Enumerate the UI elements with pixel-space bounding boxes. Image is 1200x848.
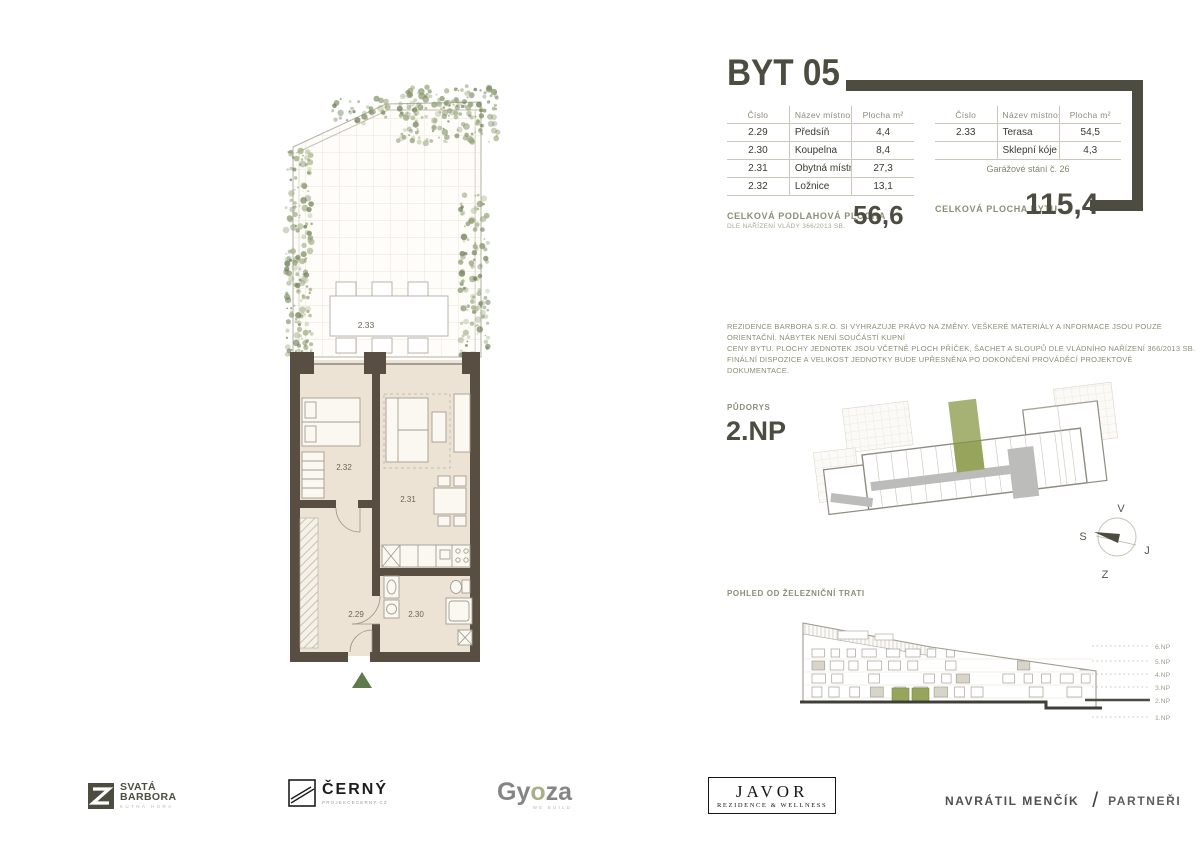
floor-labels: 6.NP 5.NP 4.NP 3.NP 2.NP 1.NP: [1155, 644, 1171, 722]
site-plan: [809, 376, 1124, 522]
col-number: Číslo: [935, 106, 997, 124]
svg-text:5.NP: 5.NP: [1155, 659, 1171, 666]
compass-north: S: [1079, 531, 1086, 543]
disclaimer-text: REZIDENCE BARBORA S.R.O. SI VYHRAZUJE PR…: [727, 321, 1197, 376]
compass-icon: V S J Z: [1079, 503, 1149, 581]
hall-number: 2.29: [348, 610, 364, 619]
table-row: 2.30 Koupelna 8,4: [727, 142, 914, 160]
table-row: 2.33 Terasa 54,5: [935, 124, 1121, 142]
elevation-unit-highlight: [892, 688, 909, 701]
plan-floor-value: 2.NP: [726, 416, 786, 447]
floor-leaders: [1092, 646, 1150, 717]
unit-area-value: 115,4: [1025, 188, 1098, 222]
col-name: Název místnosti: [997, 106, 1059, 124]
terrace-number: 2.33: [358, 320, 375, 330]
logo-navratil-mencik: NAVRÁTIL MENČÍK / PARTNEŘI: [945, 789, 1181, 813]
table-header-row: Číslo Název místnosti Plocha m²: [935, 106, 1121, 124]
table-row: Sklepní kóje (h2) 4,3: [935, 142, 1121, 160]
table-row: 2.31 Obytná místnost 27,3: [727, 160, 914, 178]
svata-barbora-icon: [88, 783, 114, 809]
floor-area-value: 56,6: [853, 200, 904, 231]
building-elevation: 6.NP 5.NP 4.NP 3.NP 2.NP 1.NP: [800, 623, 1171, 722]
elevation-unit-highlight-2: [912, 688, 929, 701]
dining-table-icon: [434, 476, 466, 526]
logo-cerny: ČERNÝ PROJEKCECERNY.CZ: [288, 779, 388, 807]
logo-gyoza: Gyoza WE BUILD: [497, 780, 572, 810]
room-table-left: Číslo Název místnosti Plocha m² 2.29 Pře…: [727, 106, 914, 196]
floor-area-sublabel: DLE NAŘÍZENÍ VLÁDY 366/2013 SB.: [727, 223, 845, 230]
accent-bar-top: [846, 80, 1143, 91]
floorplan-sheet: 2.33: [0, 0, 1200, 848]
svg-text:2.NP: 2.NP: [1155, 698, 1171, 705]
col-number: Číslo: [727, 106, 789, 124]
bed-icon: [302, 398, 360, 446]
compass-west: Z: [1102, 569, 1109, 581]
terrace: 2.33: [283, 84, 501, 361]
garage-note-row: Garážové stání č. 26: [935, 160, 1121, 178]
gyoza-o-mark: o: [530, 778, 545, 806]
room-table-right: Číslo Název místnosti Plocha m² 2.33 Ter…: [935, 106, 1121, 177]
logo-svata-barbora: SVATÁ BARBORA KUTNÁ HORA: [88, 782, 176, 809]
cabinet-icon: [454, 394, 470, 452]
apartment-plan: 2.32 2.31: [290, 352, 480, 688]
svg-text:1.NP: 1.NP: [1155, 715, 1171, 722]
unit-highlight: [948, 399, 981, 444]
page-title: BYT 05: [727, 52, 840, 94]
table-header-row: Číslo Název místnosti Plocha m²: [727, 106, 914, 124]
col-area: Plocha m²: [852, 106, 914, 124]
slash-divider: /: [1092, 789, 1098, 813]
svg-text:4.NP: 4.NP: [1155, 672, 1171, 679]
svg-text:3.NP: 3.NP: [1155, 685, 1171, 692]
compass-south: J: [1144, 545, 1150, 557]
entrance-arrow-icon: [352, 672, 372, 688]
table-row: 2.32 Ložnice 13,1: [727, 178, 914, 196]
svg-text:6.NP: 6.NP: [1155, 644, 1171, 651]
hall-closet: [300, 518, 318, 648]
unit-highlight-interior: [953, 440, 984, 472]
cerny-roof-icon: [288, 779, 316, 807]
compass-east: V: [1117, 503, 1125, 515]
col-area: Plocha m²: [1059, 106, 1121, 124]
bedroom-number: 2.32: [336, 463, 352, 472]
elevation-section-label: POHLED OD ŽELEZNIČNÍ TRATI: [727, 589, 865, 598]
table-row: 2.29 Předsíň 4,4: [727, 124, 914, 142]
logo-javor: JAVOR REZIDENCE & WELLNESS: [708, 777, 836, 814]
kitchen-icon: [382, 545, 470, 567]
wardrobe-icon: [302, 452, 324, 498]
plan-section-label: PŮDORYS: [727, 403, 770, 412]
col-name: Název místnosti: [789, 106, 851, 124]
elevation-windows: [812, 649, 1091, 697]
bath-number: 2.30: [408, 610, 424, 619]
living-number: 2.31: [400, 495, 416, 504]
accent-bar-right: [1132, 80, 1143, 211]
